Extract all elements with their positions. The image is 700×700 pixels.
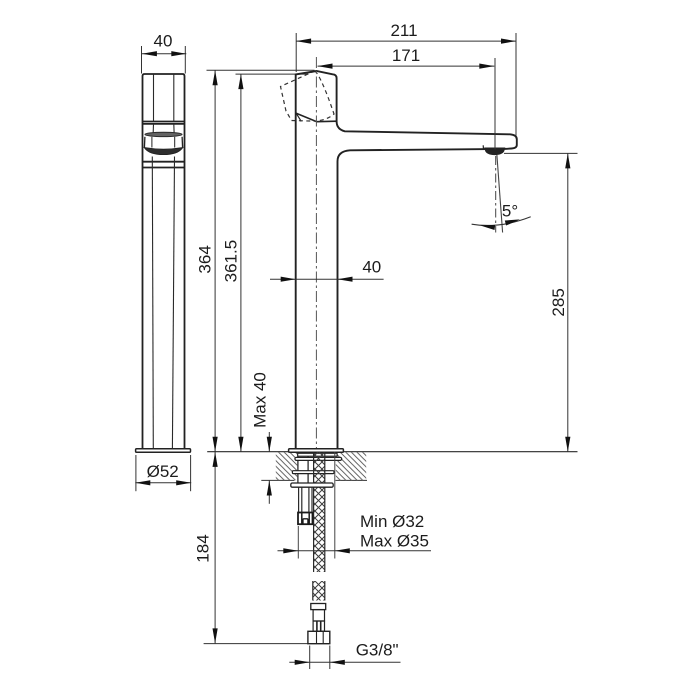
svg-text:5°: 5° bbox=[502, 201, 518, 220]
svg-text:Ø52: Ø52 bbox=[147, 462, 179, 481]
svg-text:Max 40: Max 40 bbox=[250, 372, 269, 428]
svg-text:211: 211 bbox=[390, 21, 417, 40]
svg-text:285: 285 bbox=[549, 288, 568, 316]
svg-text:184: 184 bbox=[194, 534, 213, 562]
svg-text:171: 171 bbox=[392, 46, 420, 65]
svg-text:40: 40 bbox=[154, 31, 173, 50]
svg-text:Max Ø35: Max Ø35 bbox=[360, 532, 429, 551]
svg-text:Min Ø32: Min Ø32 bbox=[360, 512, 424, 531]
svg-text:40: 40 bbox=[362, 258, 381, 277]
svg-text:364: 364 bbox=[195, 245, 214, 273]
svg-text:G3/8": G3/8" bbox=[356, 640, 399, 659]
svg-text:361.5: 361.5 bbox=[221, 240, 240, 283]
